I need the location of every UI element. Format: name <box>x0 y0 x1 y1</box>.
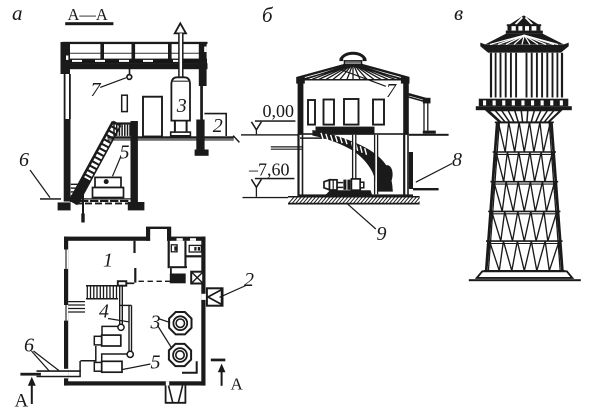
svg-text:4: 4 <box>99 301 109 323</box>
svg-text:а: а <box>12 1 23 25</box>
svg-text:5: 5 <box>151 352 161 374</box>
svg-text:в: в <box>454 1 463 25</box>
svg-text:А: А <box>231 375 244 394</box>
svg-text:5: 5 <box>120 142 130 164</box>
svg-text:3: 3 <box>150 312 161 334</box>
svg-text:2: 2 <box>213 115 223 137</box>
svg-text:2: 2 <box>244 269 254 291</box>
svg-text:А: А <box>15 391 29 412</box>
svg-text:6: 6 <box>24 335 34 357</box>
svg-text:9: 9 <box>377 223 387 245</box>
svg-text:6: 6 <box>19 149 29 171</box>
svg-text:3: 3 <box>176 95 187 117</box>
svg-text:7: 7 <box>91 79 102 101</box>
svg-text:А—А: А—А <box>68 5 108 24</box>
svg-text:7: 7 <box>386 80 397 102</box>
svg-text:0,00: 0,00 <box>263 101 295 121</box>
svg-text:8: 8 <box>452 149 462 171</box>
svg-text:1: 1 <box>103 250 113 272</box>
svg-text:–7,60: –7,60 <box>248 160 290 180</box>
svg-text:б: б <box>262 3 274 27</box>
